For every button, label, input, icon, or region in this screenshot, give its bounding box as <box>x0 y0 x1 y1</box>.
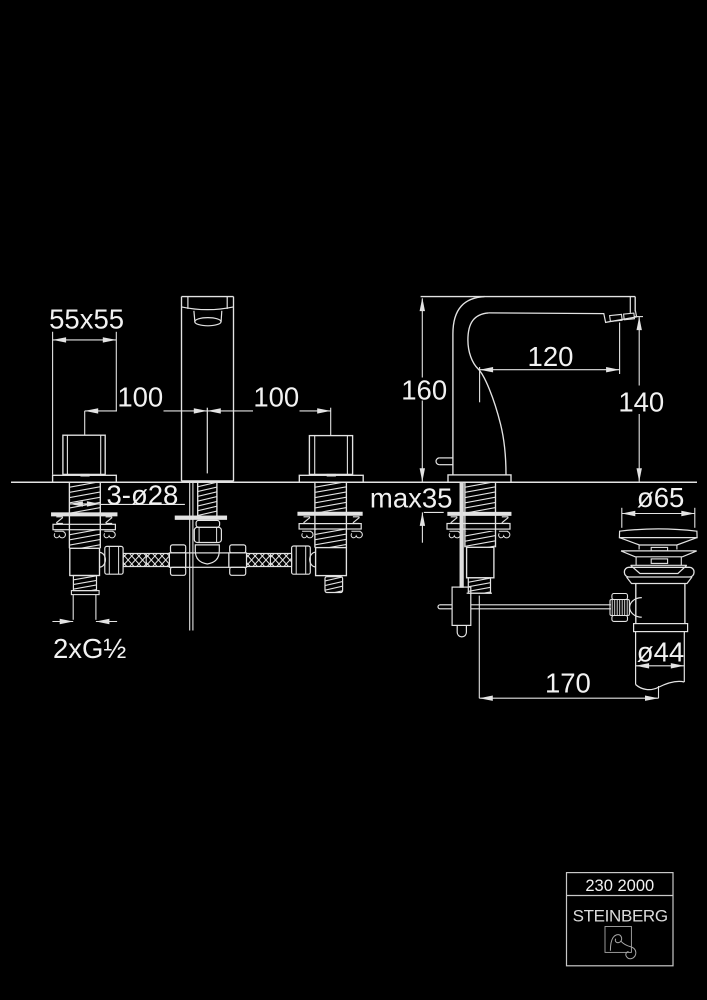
svg-text:ø65: ø65 <box>637 482 684 513</box>
svg-text:140: 140 <box>618 386 664 417</box>
svg-text:160: 160 <box>401 374 447 405</box>
svg-text:3-ø28: 3-ø28 <box>107 480 179 511</box>
svg-text:2xG½: 2xG½ <box>53 633 126 664</box>
svg-text:55x55: 55x55 <box>49 304 124 335</box>
svg-text:ø44: ø44 <box>637 637 684 668</box>
svg-text:120: 120 <box>528 341 574 372</box>
svg-text:230 2000: 230 2000 <box>585 877 654 895</box>
svg-text:100: 100 <box>117 381 163 412</box>
svg-text:100: 100 <box>253 381 299 412</box>
svg-text:STEINBERG: STEINBERG <box>573 907 668 926</box>
svg-text:170: 170 <box>545 667 591 698</box>
svg-text:max35: max35 <box>370 483 453 514</box>
